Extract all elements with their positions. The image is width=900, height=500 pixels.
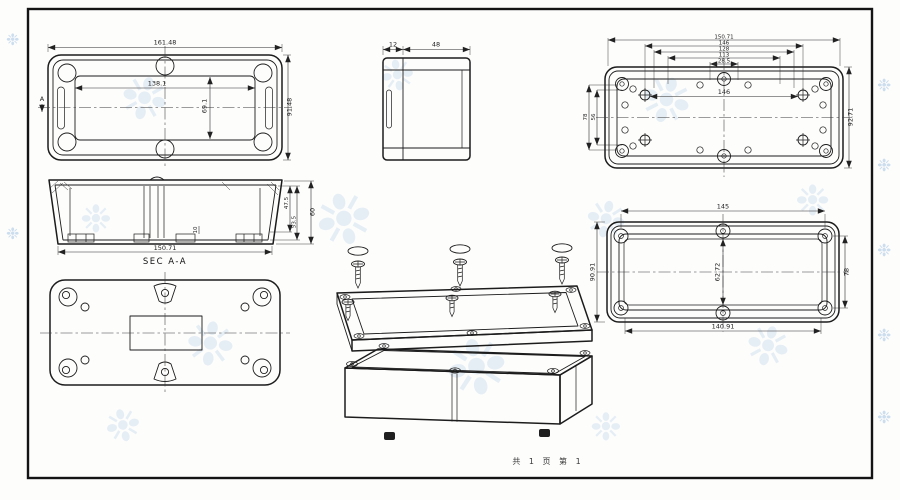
foot-plug-icon — [384, 432, 395, 440]
dim-lid-center: 62.72 — [714, 263, 722, 282]
dim-cover-inner-width: 138.1 — [148, 80, 167, 88]
engineering-drawing: 161.48 138.1 69.1 91.48 A 12 48 — [0, 0, 900, 500]
dim-side-body: 48 — [432, 41, 440, 49]
dim-section-depth-b: 53.5 — [292, 215, 298, 228]
foot-plug-icon — [539, 429, 550, 437]
dim-section-outer-height: 60 — [309, 208, 317, 216]
footer-page-text: 共 1 页 第 1 — [512, 456, 583, 466]
dim-base-inner-width: 146 — [718, 88, 730, 96]
dim-lid-left: 90.91 — [589, 263, 597, 282]
dim-cover-inner-height: 69.1 — [201, 99, 209, 113]
section-label: SEC A-A — [143, 257, 187, 267]
dim-cover-outer-height: 91.48 — [286, 98, 294, 117]
dim-section-depth-a: 47.5 — [284, 196, 290, 209]
section-marker-a: A — [40, 95, 45, 103]
dim-lid-top: 145 — [717, 203, 729, 211]
dim-side-lid: 12 — [389, 41, 397, 49]
dim-section-boss: 10 — [193, 226, 199, 233]
dim-base-left-inner: 56 — [591, 113, 597, 120]
dim-lid-right: 78 — [843, 268, 851, 276]
dim-base-left-outer: 78 — [583, 113, 589, 120]
drawing-sheet: ❉ ❉ ❉ ❉ ❉ ❉ ❉ ❉ ❉ ❉ ❉ ❉ ❉ ❉ ❉ ❉ ❉ ❉ ❉ — [0, 0, 900, 500]
dim-lid-bottom: 140.91 — [712, 323, 735, 331]
dim-base-right-height: 92.71 — [847, 108, 855, 127]
dim-section-width: 150.71 — [154, 244, 177, 252]
dim-base-stack-4: 28.5 — [718, 59, 731, 65]
dim-cover-outer-width: 161.48 — [154, 39, 177, 47]
